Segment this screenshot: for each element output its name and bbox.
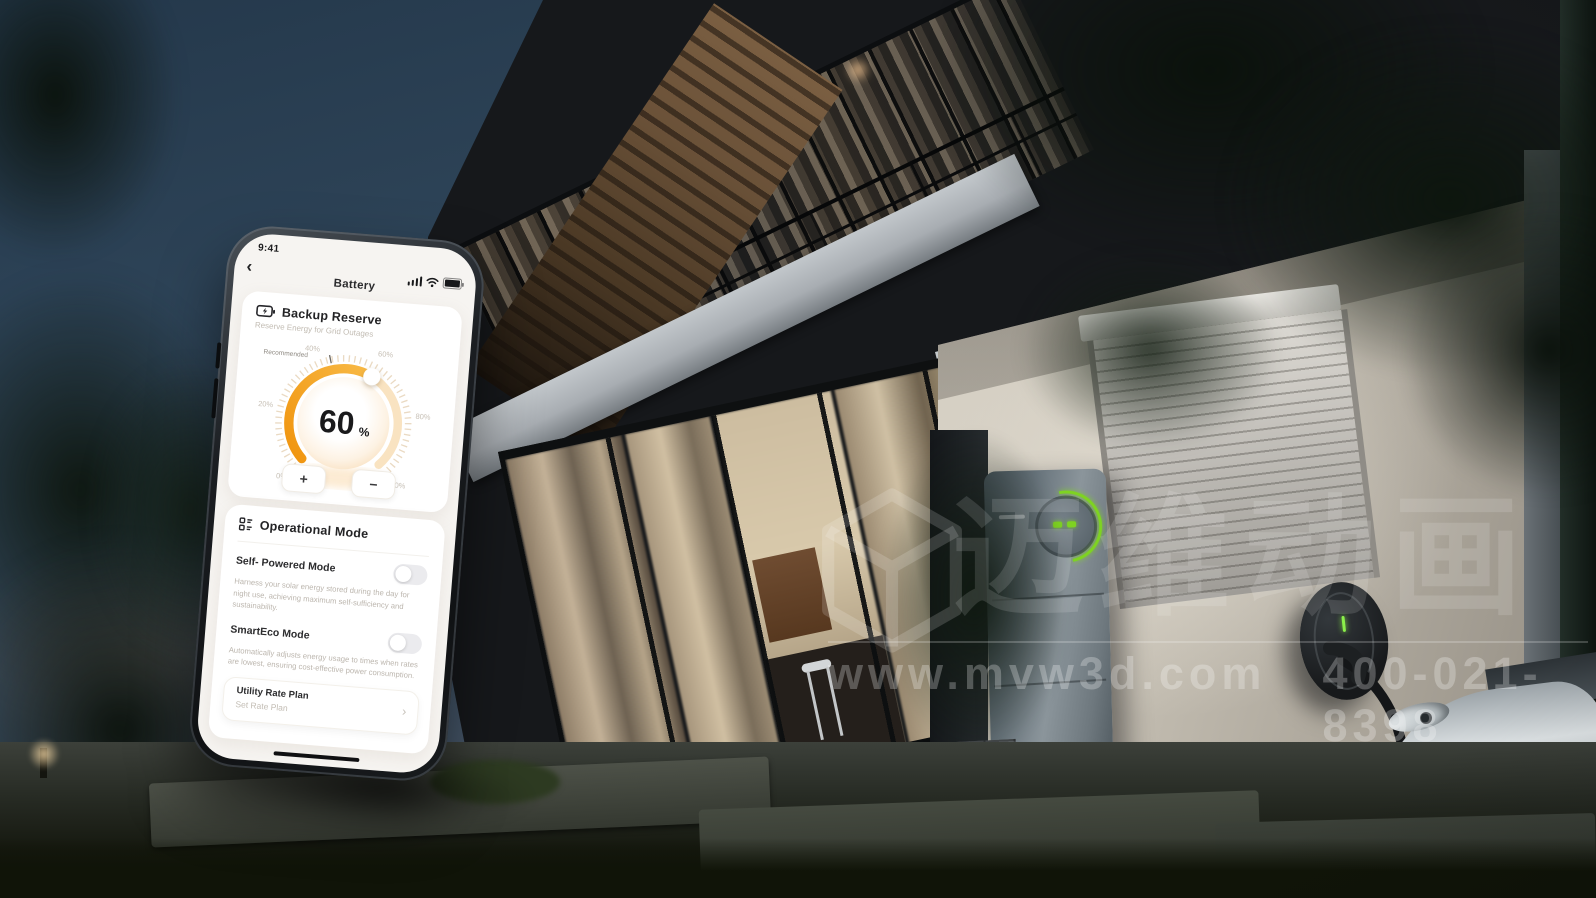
gauge-value: 60 [318, 403, 356, 442]
toggle-knob [389, 634, 406, 651]
recommended-label: Recommended [263, 349, 308, 360]
tree-foliage [1020, 250, 1280, 450]
chevron-right-icon: › [402, 703, 408, 718]
smarteco-label: SmartEco Mode [230, 623, 310, 641]
volume-button[interactable] [215, 342, 221, 368]
list-grid-icon [238, 517, 253, 532]
gauge-tick-label: 20% [258, 399, 274, 409]
phone-screen: 9:41 ‹ Battery [195, 232, 478, 776]
gauge-tick-label: 40% [305, 343, 321, 353]
decrease-button[interactable]: − [350, 469, 396, 500]
gauge-tick-label: 60% [378, 349, 394, 359]
bollard-light-glow [28, 738, 60, 770]
status-time: 9:41 [258, 242, 280, 255]
scene: 迈维动画 www.mvw3d.com 400-021-8398 9:41 ‹ [0, 0, 1596, 898]
grass [0, 838, 1596, 898]
battery-bolt-icon [256, 304, 276, 317]
operational-mode-title: Operational Mode [259, 518, 369, 541]
gauge-unit: % [358, 425, 370, 440]
car-headlight-projector [1420, 712, 1432, 724]
soffit-downlight [841, 53, 876, 88]
backup-reserve-card: Backup Reserve Reserve Energy for Grid O… [227, 290, 463, 513]
gauge-tick-label: 80% [415, 412, 431, 422]
potted-plant [880, 430, 1070, 760]
smarteco-toggle[interactable] [387, 632, 422, 655]
self-powered-toggle[interactable] [393, 563, 428, 586]
operational-mode-card: Operational Mode Self- Powered Mode Harn… [208, 504, 446, 755]
phone-mockup: 9:41 ‹ Battery [187, 223, 488, 784]
toggle-knob [395, 565, 412, 582]
home-indicator[interactable] [273, 751, 359, 762]
increase-button[interactable]: + [281, 463, 327, 494]
utility-rate-plan-card[interactable]: Utility Rate Plan Set Rate Plan › [221, 676, 420, 736]
